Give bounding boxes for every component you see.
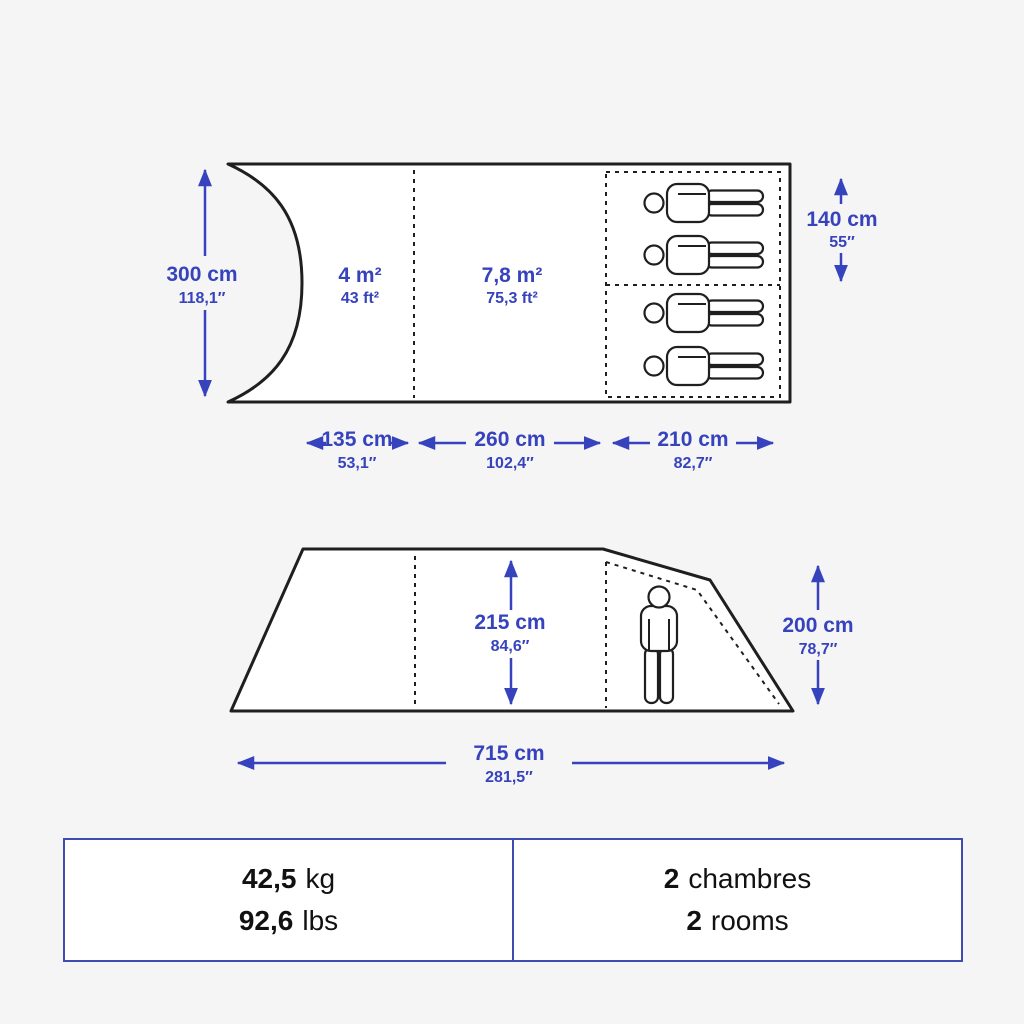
bedroom-length-in-label: 82,7″	[674, 455, 713, 472]
living-area-ft2-label: 75,3 ft²	[486, 290, 538, 307]
tent-side-view: 215 cm 84,6″ 200 cm 78,7″ 715 cm 281,5″	[231, 549, 854, 786]
bedroom-width-cm-label: 140 cm	[806, 208, 877, 231]
tent-width-cm-label: 300 cm	[166, 263, 237, 286]
bedroom-length-cm-label: 210 cm	[657, 428, 728, 451]
weight-lbs-value: 92,6	[239, 905, 294, 936]
rooms-count-en: 2	[686, 905, 702, 936]
weight-imperial: 92,6lbs	[239, 900, 338, 942]
interior-height-in-label: 84,6″	[491, 638, 530, 655]
weight-kg-unit: kg	[305, 863, 335, 894]
total-length-in-label: 281,5″	[485, 769, 533, 786]
living-area-m2-label: 7,8 m²	[482, 264, 543, 287]
weight-metric: 42,5kg	[242, 858, 335, 900]
rooms-english: 2rooms	[686, 900, 788, 942]
porch-area-ft2-label: 43 ft²	[341, 290, 379, 307]
rooms-label-en: rooms	[711, 905, 789, 936]
weight-lbs-unit: lbs	[302, 905, 338, 936]
spec-table: 42,5kg 92,6lbs 2chambres 2rooms	[63, 838, 963, 962]
weight-kg-value: 42,5	[242, 863, 297, 894]
porch-length-in-label: 53,1″	[338, 455, 377, 472]
rooms-count-fr: 2	[664, 863, 680, 894]
rooms-french: 2chambres	[664, 858, 812, 900]
weight-cell: 42,5kg 92,6lbs	[65, 840, 512, 960]
living-length-cm-label: 260 cm	[474, 428, 545, 451]
bedroom-width-in-label: 55″	[829, 234, 855, 251]
tent-width-in-label: 118,1″	[179, 290, 226, 307]
rear-height-cm-label: 200 cm	[782, 614, 853, 637]
tent-dimensions-infographic: 300 cm 118,1″ 4 m² 43 ft² 7,8 m² 75,3 ft…	[0, 0, 1024, 1024]
tent-top-view: 300 cm 118,1″ 4 m² 43 ft² 7,8 m² 75,3 ft…	[166, 164, 877, 472]
porch-area-m2-label: 4 m²	[338, 264, 381, 287]
rooms-cell: 2chambres 2rooms	[512, 840, 961, 960]
rear-height-in-label: 78,7″	[799, 641, 838, 658]
living-length-in-label: 102,4″	[486, 455, 534, 472]
total-length-cm-label: 715 cm	[473, 742, 544, 765]
porch-length-cm-label: 135 cm	[321, 428, 392, 451]
interior-height-cm-label: 215 cm	[474, 611, 545, 634]
rooms-label-fr: chambres	[688, 863, 811, 894]
